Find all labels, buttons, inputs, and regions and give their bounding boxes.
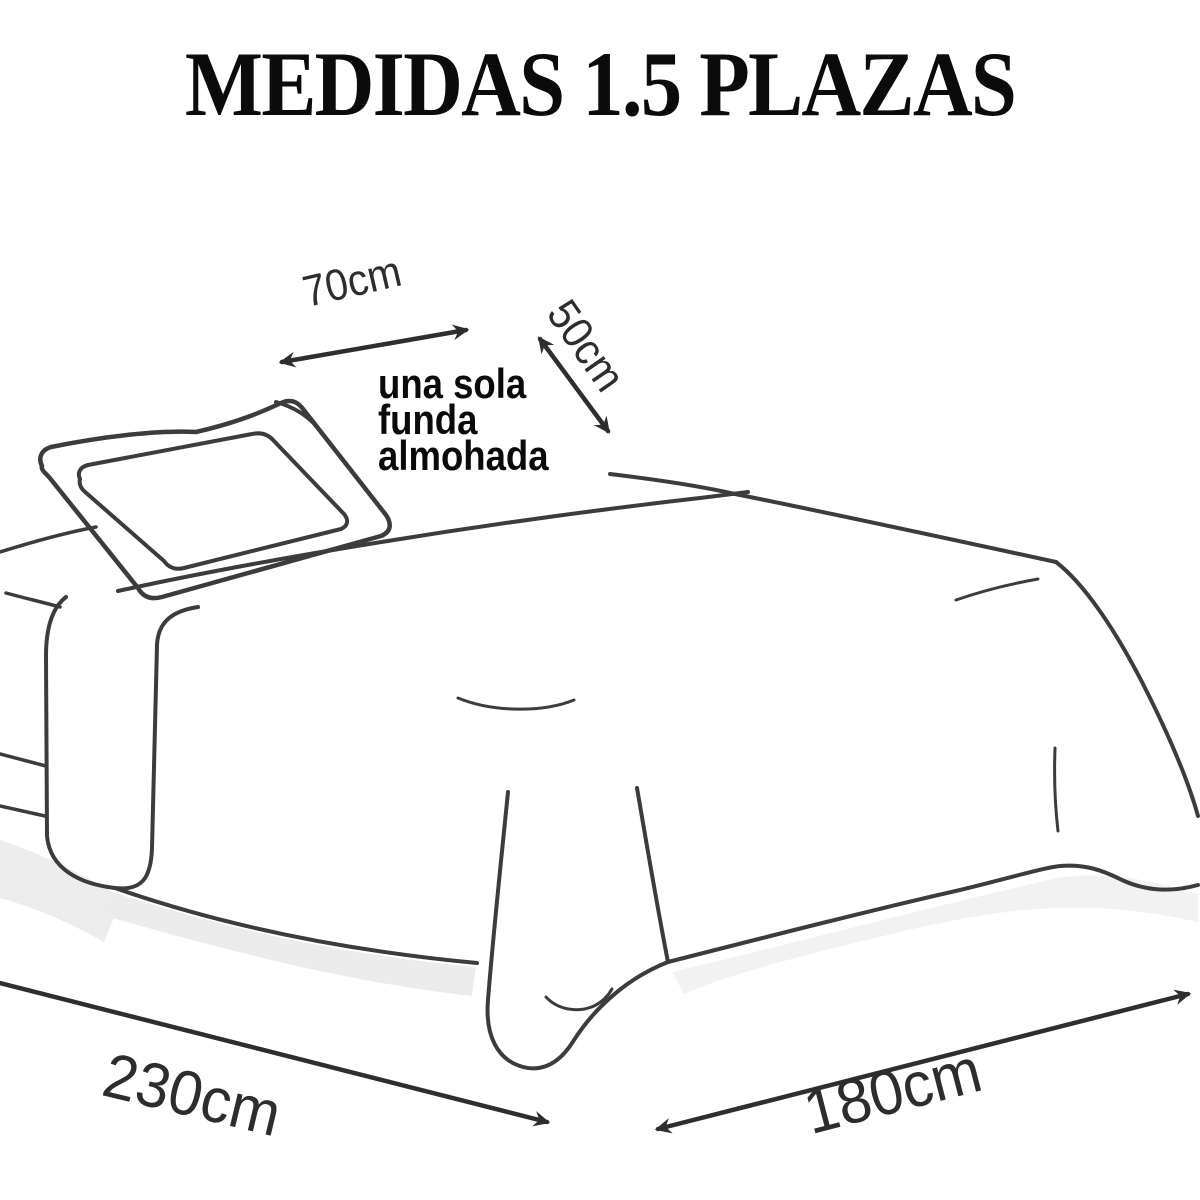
pillow-note-line-3: almohada xyxy=(378,438,549,474)
bed-line-art xyxy=(0,0,1200,1200)
page-title: MEDIDAS 1.5 PLAZAS xyxy=(60,38,1140,130)
pillow-note: una sola funda almohada xyxy=(378,366,549,474)
product-measurement-diagram: MEDIDAS 1.5 PLAZAS 70cm 50cm una sola fu… xyxy=(0,0,1200,1200)
foot-drape-edge xyxy=(1056,562,1198,816)
sheet-top-edge xyxy=(118,492,748,591)
floor-shadows xyxy=(0,840,1198,996)
pillow-inner-outline xyxy=(79,433,347,568)
left-drape-outline xyxy=(46,597,198,888)
pillow-width-arrow xyxy=(282,330,466,362)
center-fold-right xyxy=(637,788,668,962)
bedspread-outline xyxy=(46,474,1198,1068)
corner-crease xyxy=(956,579,1038,600)
pillow-drawing xyxy=(40,401,389,598)
center-fold-left xyxy=(488,792,668,1068)
side-crease xyxy=(1055,748,1058,831)
sheet-far-edge xyxy=(610,474,1056,562)
top-v-crease xyxy=(458,698,574,709)
